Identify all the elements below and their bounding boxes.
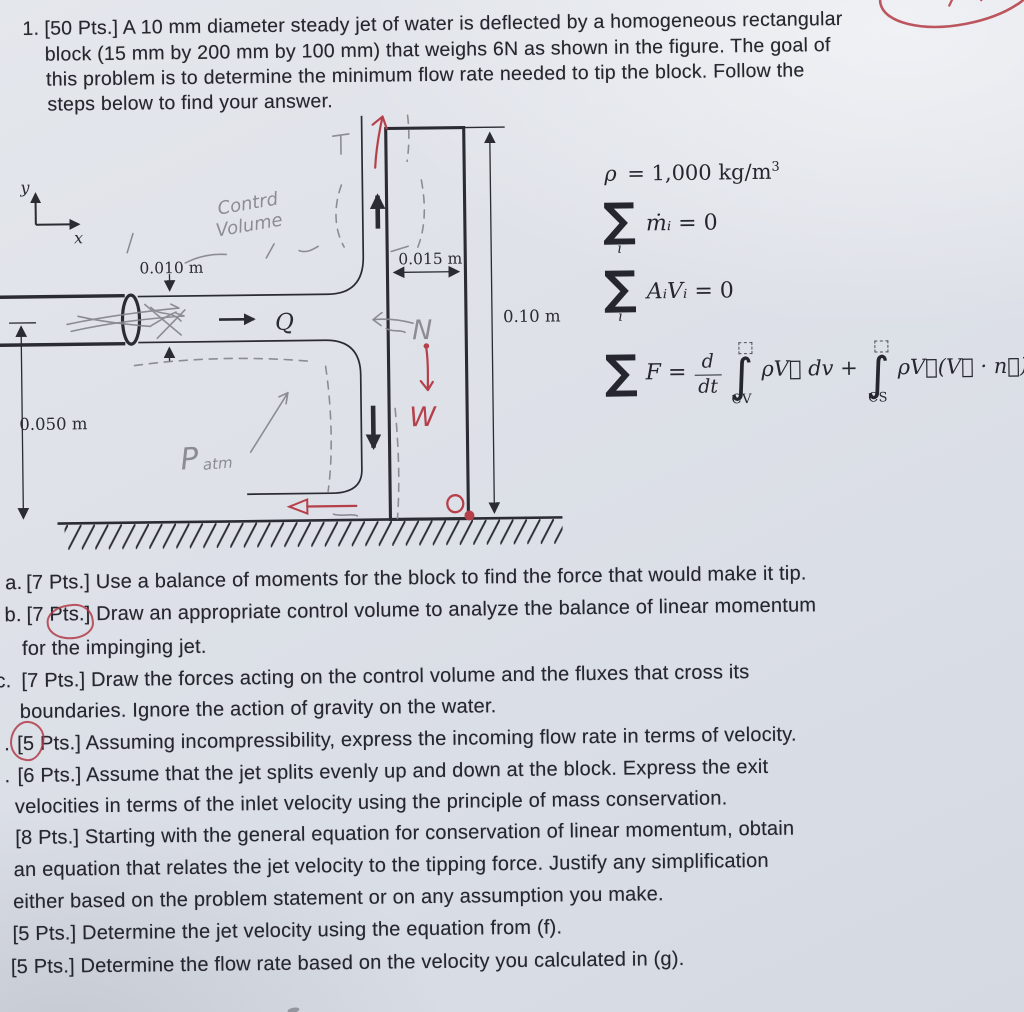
density-symbol: ρ (604, 162, 617, 186)
task-marker: b. (4, 604, 21, 627)
photo-of-problem-sheet: 1. [50 Pts.] A 10 mm diameter steady jet… (0, 0, 1024, 1012)
red-circle-annotation-d (8, 719, 47, 763)
task-line: velocities in terms of the inlet velocit… (15, 787, 728, 819)
mass-term: ṁᵢ (646, 211, 672, 236)
density-exponent: 3 (771, 160, 779, 175)
momentum-body-2: ρV⃗(V⃗ · n⃗) da (898, 354, 1024, 390)
red-left-arrow (307, 506, 356, 507)
dashed-box-icon (738, 342, 752, 354)
sigma-symbol: ∑ (603, 198, 637, 241)
volume-rhs: = 0 (694, 278, 734, 303)
task-line: either based on the problem statement or… (13, 883, 664, 914)
block-top-extension (464, 127, 505, 128)
block-width-label: 0.015 m (398, 250, 463, 269)
sigma-index: i (618, 310, 623, 324)
integral-sub-cv: CV (732, 394, 753, 407)
paper-speck (287, 1007, 300, 1012)
problem-figure: y x 0.10 m 0.015 m 0.010 m 0.050 m (0, 94, 581, 561)
block-height-label: 0.10 m (503, 306, 561, 326)
axis-y-label: y (19, 178, 30, 197)
handwritten-pressure: P atm (179, 439, 233, 478)
sigma-index: i (617, 242, 622, 256)
svg-text:atm: atm (202, 453, 233, 473)
axis-x-label: x (74, 228, 83, 247)
task-line: [7 Pts.] Draw an appropriate control vol… (26, 594, 816, 627)
task-line: [5 Pts.] Assuming incompressibility, exp… (17, 724, 797, 757)
problem-number: 1. (22, 18, 39, 41)
integral-sub-cs: CS (868, 392, 888, 405)
grader-mark-ellipse (853, 0, 1024, 56)
cv-integral: ∫ CV (729, 342, 754, 407)
volume-term: AᵢVᵢ (647, 279, 688, 304)
momentum-lhs: F = (646, 360, 687, 391)
task-line: an equation that relates the jet velocit… (14, 850, 769, 882)
task-marker: c. (0, 670, 12, 693)
task-marker: a. (5, 572, 22, 595)
jet-height-label: 0.050 m (19, 414, 88, 434)
dashed-box-icon (874, 340, 888, 352)
task-line: [7 Pts.] Use a balance of moments for th… (26, 562, 807, 595)
handwritten-control-volume: Contrd Volume (214, 188, 284, 241)
sigma-symbol: ∑ (603, 266, 637, 309)
integral-symbol: ∫ (729, 355, 753, 396)
momentum-equation: ∑ F = d dt ∫ CV ρV⃗ dv + ∫ CS ρV⃗(V⃗ · n… (604, 338, 1024, 408)
task-line: [6 Pts.] Assume that the jet splits even… (17, 756, 768, 788)
jet-diameter-label: 0.010 m (139, 259, 204, 278)
pivot-circle (447, 495, 463, 512)
red-left-arrowhead (289, 500, 307, 514)
down-jet-arrow (373, 406, 374, 448)
flow-label-q: Q (275, 310, 294, 336)
jet-boundaries (136, 116, 367, 496)
mass-rhs: = 0 (678, 210, 718, 235)
task-line: for the impinging jet. (22, 636, 207, 661)
task-line: [5 Pts.] Determine the jet velocity usin… (12, 916, 562, 946)
frac-denominator: dt (698, 377, 718, 397)
frac-numerator: d (702, 353, 714, 373)
sheet-content: 1. [50 Pts.] A 10 mm diameter steady jet… (0, 0, 1024, 1012)
svg-text:P: P (179, 441, 201, 477)
sigma-symbol: ∑ (604, 351, 638, 402)
coordinate-axes (35, 193, 78, 225)
ddt-fraction: d dt (694, 353, 722, 397)
ground (57, 517, 562, 550)
task-marker: . (4, 765, 10, 788)
task-line: [8 Pts.] Starting with the general equat… (15, 818, 794, 851)
volume-balance-equation: ∑ i AᵢVᵢ = 0 (603, 265, 734, 324)
handwritten-normal-force: N (412, 315, 433, 346)
task-line: boundaries. Ignore the action of gravity… (20, 695, 497, 724)
density-relation: = 1,000 kg/m (627, 160, 772, 186)
mass-balance-equation: ∑ i ṁᵢ = 0 (603, 197, 718, 256)
task-line: [5 Pts.] Determine the flow rate based o… (11, 948, 685, 979)
density-equation: ρ = 1,000 kg/m3 (604, 160, 780, 186)
momentum-body-1: ρV⃗ dv + (761, 356, 858, 391)
integral-symbol: ∫ (866, 353, 890, 394)
handwritten-weight: W (409, 402, 437, 433)
weight-arrow (420, 349, 433, 390)
task-line: [7 Pts.] Draw the forces acting on the c… (21, 661, 749, 693)
cs-integral: ∫ CS (865, 340, 890, 405)
